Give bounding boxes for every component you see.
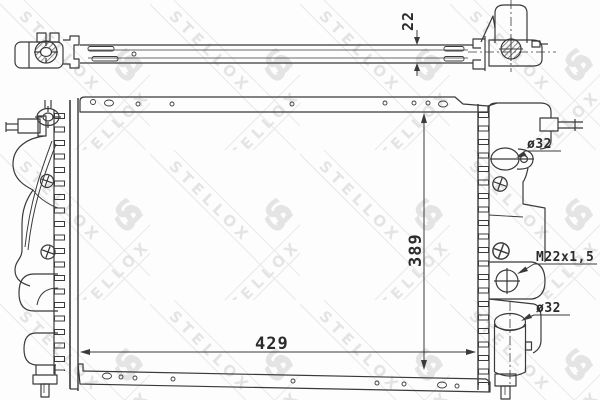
lower-port-diameter-label: ø32 [536, 301, 561, 316]
upper-port-diameter-label: ø32 [527, 137, 552, 152]
core-width-label: 429 [255, 334, 289, 354]
drawing-canvas: STELLOX S STELLOX S [0, 0, 600, 400]
right-castellated-joint [478, 112, 489, 385]
left-castellated-joint [54, 113, 65, 371]
core-thickness-label: 22 [399, 11, 417, 31]
radiator-technical-drawing: STELLOX S STELLOX S [0, 0, 600, 400]
core-height-label: 389 [406, 233, 426, 267]
drain-plug-thread-label: M22x1,5 [536, 250, 594, 265]
